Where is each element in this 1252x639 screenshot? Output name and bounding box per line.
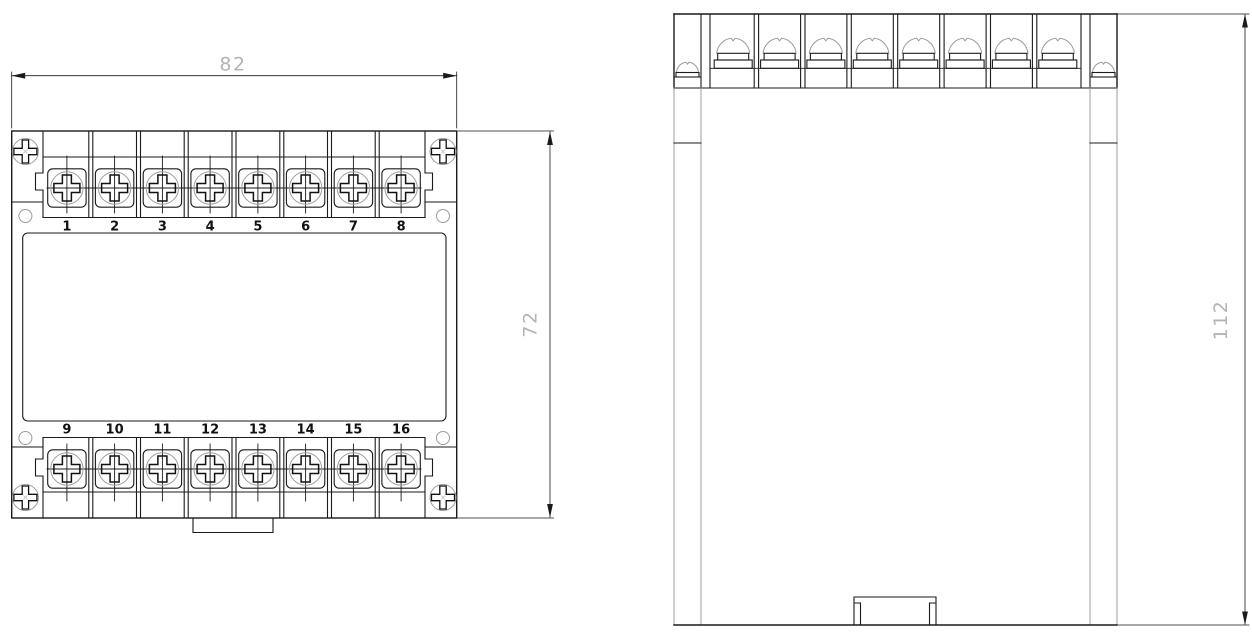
dim-depth-label: 112 [1210,300,1232,341]
terminal-number: 9 [62,423,71,438]
drawing-svg: 1 2 3 4 5 6 7 8 9 10 11 12 13 14 15 16 8… [0,0,1252,639]
phillips-screw-icon [430,485,456,511]
terminal-number: 10 [106,423,124,438]
dome-screw-icon [807,38,845,68]
phillips-screw-icon [12,485,38,511]
corner-screws [12,139,456,511]
dome-screw-icon [714,38,752,68]
terminal-screw-icon [334,156,372,213]
terminal-numbers-top: 1 2 3 4 5 6 7 8 [62,220,405,235]
terminal-screw-icon [48,156,86,213]
front-body-outline [12,131,457,518]
dome-screw-icon [761,38,799,68]
terminal-screw-icon [239,156,277,213]
terminal-number: 15 [344,423,362,438]
dome-screw-icon [992,38,1030,68]
dimension-depth: 112 [1118,14,1249,625]
side-terminal-band [674,14,1117,88]
terminal-number: 7 [349,220,358,235]
side-screws [676,38,1115,77]
terminal-number: 1 [62,220,71,235]
terminal-screw-icon [191,156,229,213]
terminal-number: 12 [201,423,219,438]
front-view: 1 2 3 4 5 6 7 8 9 10 11 12 13 14 15 16 8… [12,54,554,533]
side-view: 112 [674,14,1249,625]
dome-screw-icon [1039,38,1077,68]
terminal-number: 3 [158,220,167,235]
dimension-height: 72 [458,131,554,518]
terminal-number: 13 [249,423,267,438]
dome-screw-icon [946,38,984,68]
dome-screw-icon [853,38,891,68]
terminal-number: 11 [153,423,171,438]
terminal-dividers-top [89,131,379,218]
terminal-number: 2 [110,220,119,235]
mounting-holes [19,210,450,445]
terminal-number: 6 [301,220,310,235]
terminal-number: 4 [206,220,215,235]
din-tab-front [193,518,273,533]
corner-dome-screw-icon [1092,62,1115,77]
corner-dome-screw-icon [676,62,699,77]
dome-screw-icon [900,38,938,68]
engineering-drawing: 1 2 3 4 5 6 7 8 9 10 11 12 13 14 15 16 8… [0,0,1252,639]
terminal-screw-icon [286,156,324,213]
terminal-screw-icon [95,156,133,213]
phillips-screw-icon [12,139,38,165]
terminal-screws-top [48,156,421,213]
side-dividers [754,14,1037,88]
terminal-number: 16 [392,423,410,438]
terminal-number: 5 [253,220,262,235]
terminal-screw-icon [143,156,181,213]
terminal-numbers-bottom: 9 10 11 12 13 14 15 16 [62,423,410,438]
side-body [674,88,1117,625]
strip-edge-notches [12,131,457,518]
terminal-number: 8 [397,220,406,235]
phillips-screw-icon [430,139,456,165]
dim-height-label: 72 [520,310,542,337]
din-tab-side [854,597,936,625]
terminal-number: 14 [297,423,315,438]
dimension-width: 82 [12,54,457,129]
dim-width-label: 82 [219,54,246,76]
label-area [23,233,446,421]
terminal-dividers-bottom [89,438,379,519]
terminal-screw-icon [382,156,420,213]
